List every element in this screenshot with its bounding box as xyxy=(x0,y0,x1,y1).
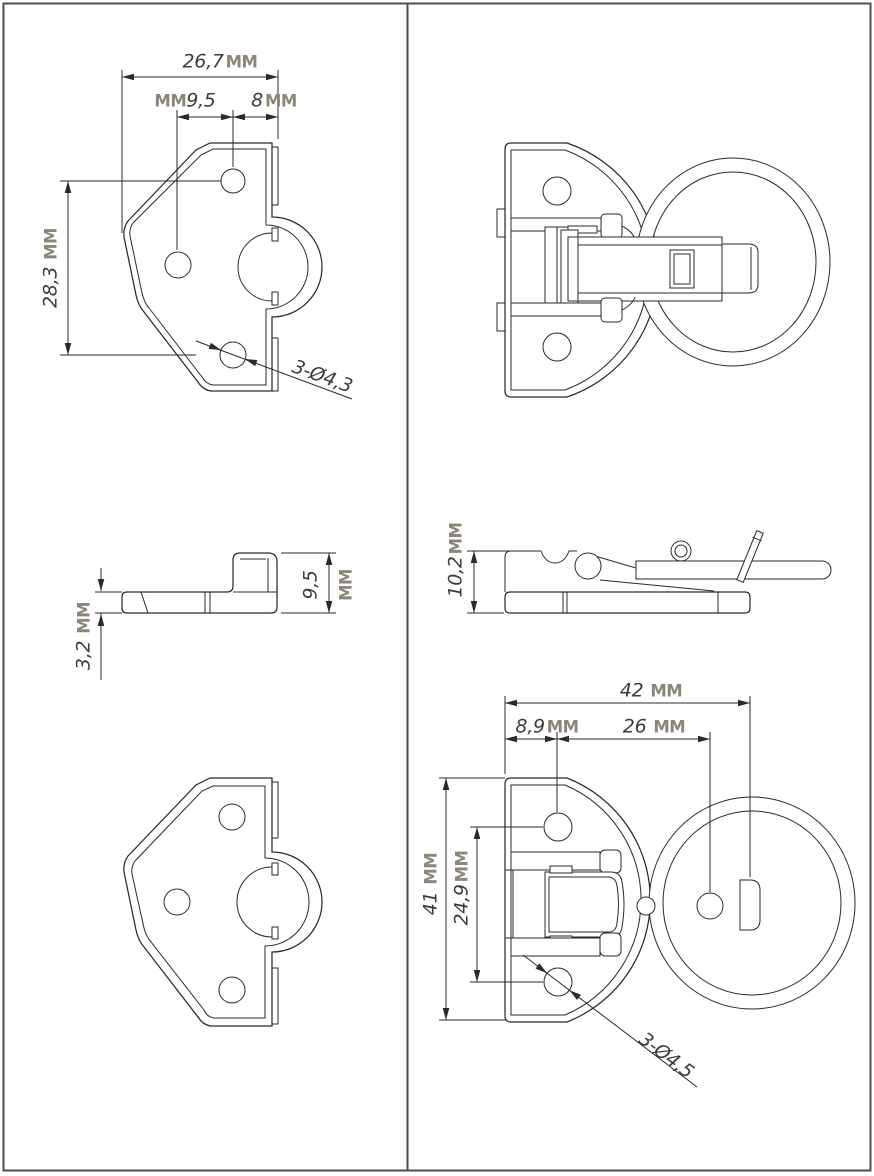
dim-plate-height-label: 28,3MM xyxy=(42,228,61,308)
view-plate-back xyxy=(124,778,322,1026)
dim-latch-hole-vspacing-label: 24,9MM xyxy=(453,851,472,926)
dim-unit: MM xyxy=(226,53,258,72)
dim-unit: MM xyxy=(547,718,579,737)
technical-drawing-page: 26,7MM MM9,5 8MM 28,3MM 3-Ø4,3 3,2MM 9,5… xyxy=(0,0,874,1176)
dim-unit: MM xyxy=(422,853,441,885)
dim-value: 10,2 xyxy=(445,556,467,597)
dim-value: 26,7 xyxy=(183,51,224,73)
dim-latch-hole-offset-a-label: 8,9MM xyxy=(515,718,578,737)
dim-unit: MM xyxy=(653,718,685,737)
dim-unit: MM xyxy=(453,851,472,883)
dim-plate-width-label: 26,7MM xyxy=(183,53,258,72)
dim-plate-hook-height-label: 9,5 xyxy=(302,570,321,599)
dim-value: 41 xyxy=(420,892,442,916)
dim-value: 9,5 xyxy=(186,90,215,112)
dim-plate-hole-offset-b-label: 8MM xyxy=(251,92,297,111)
dim-unit: MM xyxy=(650,682,682,701)
dim-value: 3,2 xyxy=(73,641,95,670)
dim-unit: MM xyxy=(42,228,61,260)
dim-unit: MM xyxy=(265,92,297,111)
dim-value: 8,9 xyxy=(515,716,544,738)
view-latch-assembled-front xyxy=(497,143,830,397)
dim-latch-width-label: 42MM xyxy=(620,682,682,701)
dim-plate-hook-height-unit: MM xyxy=(337,569,356,601)
dim-value: 42 xyxy=(620,680,644,702)
dim-value: 28,3 xyxy=(40,267,62,308)
dim-plate-hole-offset-a-label: MM9,5 xyxy=(154,92,215,111)
dim-latch-side-height-label: 10,2MM xyxy=(447,523,466,598)
drawing-linework xyxy=(0,0,874,1176)
dim-unit: MM xyxy=(447,523,466,555)
dim-value: 8 xyxy=(251,90,263,112)
dim-latch-height-label: 41MM xyxy=(422,853,441,915)
dim-unit: MM xyxy=(154,92,186,111)
dim-value: 9,5 xyxy=(300,570,322,599)
dim-unit: MM xyxy=(75,602,94,634)
view-latch-side xyxy=(467,531,831,613)
dim-unit: MM xyxy=(337,569,356,601)
dim-value: 24,9 xyxy=(451,884,473,925)
dim-value: 26 xyxy=(623,716,647,738)
dim-plate-thickness-label: 3,2MM xyxy=(75,602,94,670)
dim-latch-hole-spacing-label: 26MM xyxy=(623,718,685,737)
view-plate-front xyxy=(60,70,352,399)
